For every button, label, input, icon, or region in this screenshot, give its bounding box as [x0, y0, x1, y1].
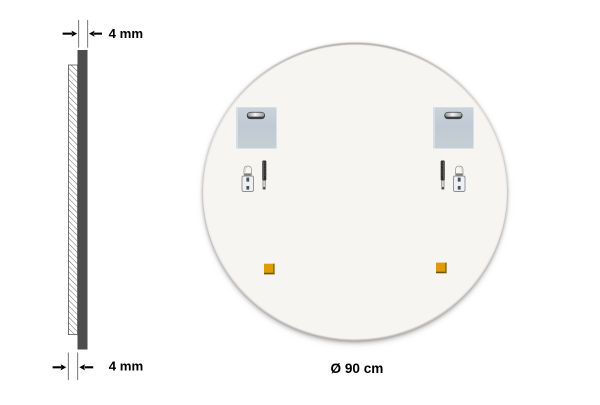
svg-text:4 mm: 4 mm: [109, 359, 143, 374]
svg-text:Ø 90 cm: Ø 90 cm: [331, 361, 384, 376]
svg-text:4 mm: 4 mm: [109, 26, 143, 41]
